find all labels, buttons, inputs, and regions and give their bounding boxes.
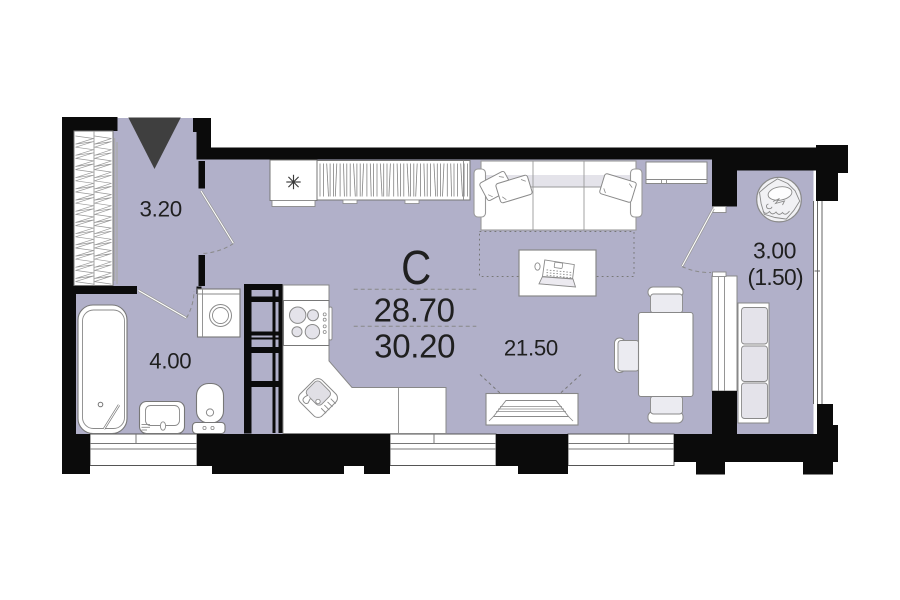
svg-text:3.20: 3.20 [140, 197, 182, 222]
svg-text:28.70: 28.70 [374, 291, 455, 328]
svg-text:4.00: 4.00 [149, 348, 191, 373]
svg-text:3.00: 3.00 [753, 238, 796, 264]
svg-text:C: C [401, 240, 431, 295]
svg-text:(1.50): (1.50) [748, 264, 803, 290]
svg-text:21.50: 21.50 [504, 336, 558, 361]
svg-text:30.20: 30.20 [374, 328, 455, 365]
